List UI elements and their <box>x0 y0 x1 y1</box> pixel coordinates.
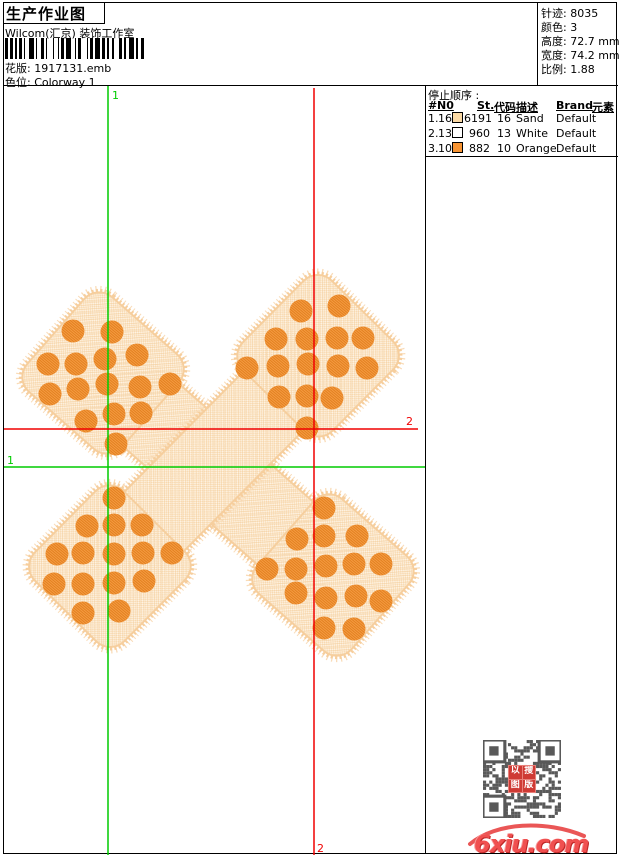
guide-label-1-left: 1 <box>7 454 14 467</box>
watermark-logo: 6xiu.com <box>462 818 592 858</box>
col-header-seq: # <box>428 99 437 112</box>
color-swatch <box>452 127 463 138</box>
table-bottom-border <box>425 156 618 157</box>
embroidery-design: 1 1 2 2 <box>4 86 425 855</box>
guide-label-2-bottom: 2 <box>317 842 324 855</box>
guide-label-1-top: 1 <box>112 89 119 102</box>
design-scale: 比例: 1.88 <box>541 61 595 77</box>
qr-center-seal: 以 搜 图 版 <box>508 765 536 793</box>
panel-divider <box>425 85 426 854</box>
col-header-needle: N0 <box>437 99 454 112</box>
stats-divider <box>537 2 538 85</box>
page-title: 生产作业图 <box>6 3 86 24</box>
worksheet-page: 生产作业图 Wilcom(汇京) 装饰工作室 花版: 1917131.emb 色… <box>0 0 620 860</box>
barcode <box>5 38 158 59</box>
watermark-text: 6xiu.com <box>474 830 588 858</box>
color-swatch <box>452 142 463 153</box>
color-swatch <box>452 112 463 123</box>
col-header-stitches: St. <box>477 99 494 112</box>
guide-label-2-right: 2 <box>406 415 413 428</box>
col-header-brand: Brand <box>556 99 593 112</box>
